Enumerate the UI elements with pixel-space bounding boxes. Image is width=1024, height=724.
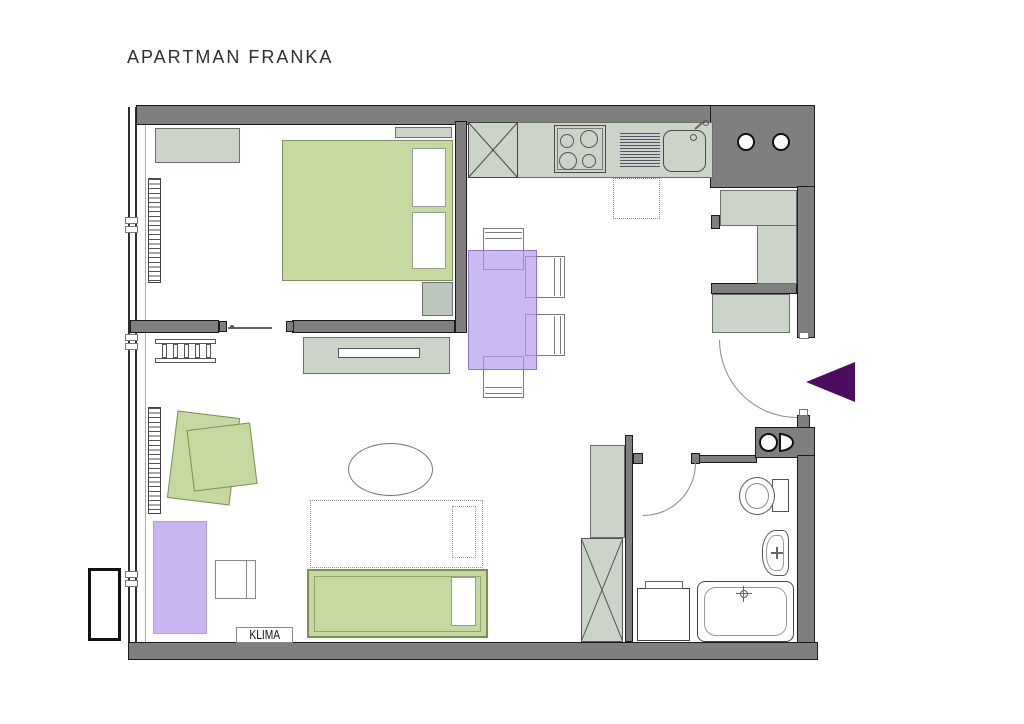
right-wall-lower bbox=[797, 455, 815, 648]
bathroom-top-wall bbox=[699, 455, 757, 463]
ladder-rack-rung bbox=[184, 344, 189, 358]
entry-closet-stub-wall bbox=[711, 215, 720, 229]
bottom-wall bbox=[128, 642, 818, 660]
window-mullion bbox=[125, 226, 138, 233]
klima-outdoor-unit bbox=[88, 568, 121, 641]
side-table bbox=[215, 560, 256, 599]
floor-plan: APARTMAN FRANKA bbox=[0, 0, 1024, 724]
stove-burner bbox=[582, 154, 596, 168]
entry-direction-arrow bbox=[806, 362, 855, 402]
window-glass-line-outer bbox=[128, 107, 130, 642]
kitchen-sink bbox=[663, 130, 706, 172]
entry-door-strike-stub bbox=[797, 415, 810, 428]
washing-machine bbox=[637, 588, 690, 641]
hallway-wall bbox=[625, 435, 633, 642]
entry-door-jamb-cap bbox=[799, 332, 809, 339]
entry-cabinet bbox=[712, 294, 790, 333]
ladder-rack-rail bbox=[155, 358, 216, 363]
bedroom-door-stub bbox=[286, 321, 294, 332]
bathroom-door-left-jamb bbox=[633, 453, 643, 464]
stove-burner bbox=[580, 130, 598, 148]
fridge-x-mark bbox=[468, 122, 518, 178]
window-mullion bbox=[125, 571, 138, 578]
entry-lower-wall bbox=[711, 283, 797, 294]
bedroom-door-knob bbox=[230, 325, 234, 329]
ladder-rack-rung bbox=[173, 344, 178, 358]
bedroom-dresser bbox=[155, 128, 240, 163]
bed-pillow bbox=[412, 148, 446, 207]
window-glass-line-mid bbox=[135, 107, 137, 642]
bedroom-shelf bbox=[395, 127, 452, 138]
ladder-rack-rung bbox=[206, 344, 211, 358]
daybed bbox=[153, 521, 207, 634]
hallway-wardrobe bbox=[590, 445, 625, 538]
window-mullion bbox=[125, 580, 138, 587]
dishwasher-outline bbox=[613, 178, 660, 219]
washbasin-tap-cross bbox=[776, 547, 778, 559]
window-frame-line-inner bbox=[145, 125, 146, 642]
window-mullion bbox=[125, 217, 138, 224]
bathtub-tap-cross bbox=[743, 586, 744, 602]
sink-faucet-head bbox=[703, 120, 709, 126]
bedroom-wall-left-segment bbox=[130, 320, 219, 333]
side-table-line bbox=[246, 561, 247, 598]
living-room-radiator bbox=[148, 407, 161, 514]
entry-door-swing-arc bbox=[719, 340, 797, 418]
entry-wardrobe-top bbox=[720, 190, 797, 226]
floor-cushion bbox=[186, 422, 257, 491]
service-shaft-circle bbox=[759, 433, 778, 452]
bathtub-tap-cross bbox=[736, 593, 752, 594]
entry-wardrobe-side bbox=[757, 225, 797, 284]
klima-unit-label: KLIMA bbox=[236, 627, 293, 643]
window-mullion bbox=[125, 343, 138, 350]
tv-screen bbox=[338, 348, 420, 358]
single-bed-pillow bbox=[451, 577, 476, 626]
bed-pillow bbox=[412, 212, 446, 269]
bedroom-door-leaf bbox=[228, 327, 272, 329]
ladder-rack-rung bbox=[195, 344, 200, 358]
bathroom-door-swing-arc bbox=[643, 463, 696, 516]
sink-drainer bbox=[620, 133, 660, 169]
entry-door-jamb-cap bbox=[799, 409, 808, 416]
dining-table bbox=[468, 250, 537, 370]
bedroom-door-stub bbox=[219, 321, 227, 332]
bathtub-tap bbox=[740, 590, 748, 598]
sink-faucet-base bbox=[690, 134, 697, 141]
klima-text: KLIMA bbox=[249, 628, 280, 642]
stove-burner bbox=[560, 134, 574, 148]
coffee-table-oval bbox=[348, 443, 433, 496]
bedroom-radiator bbox=[148, 178, 161, 283]
right-wall-upper bbox=[797, 186, 815, 338]
bedroom-wall-right-segment bbox=[292, 320, 455, 333]
entry-wall-block bbox=[710, 105, 815, 188]
ladder-rack-rung bbox=[162, 344, 167, 358]
toilet-bowl-inner bbox=[745, 483, 769, 509]
entry-spot-circle bbox=[737, 133, 755, 151]
stove-burner bbox=[559, 152, 577, 170]
page-title: APARTMAN FRANKA bbox=[127, 47, 333, 68]
hallway-cabinet-x-mark bbox=[581, 538, 623, 642]
nightstand bbox=[422, 282, 453, 316]
rug-inner-outline bbox=[452, 506, 476, 558]
entry-spot-circle bbox=[772, 133, 790, 151]
bedroom-right-wall bbox=[455, 121, 467, 333]
washing-machine-panel bbox=[645, 581, 683, 589]
window-mullion bbox=[125, 334, 138, 341]
